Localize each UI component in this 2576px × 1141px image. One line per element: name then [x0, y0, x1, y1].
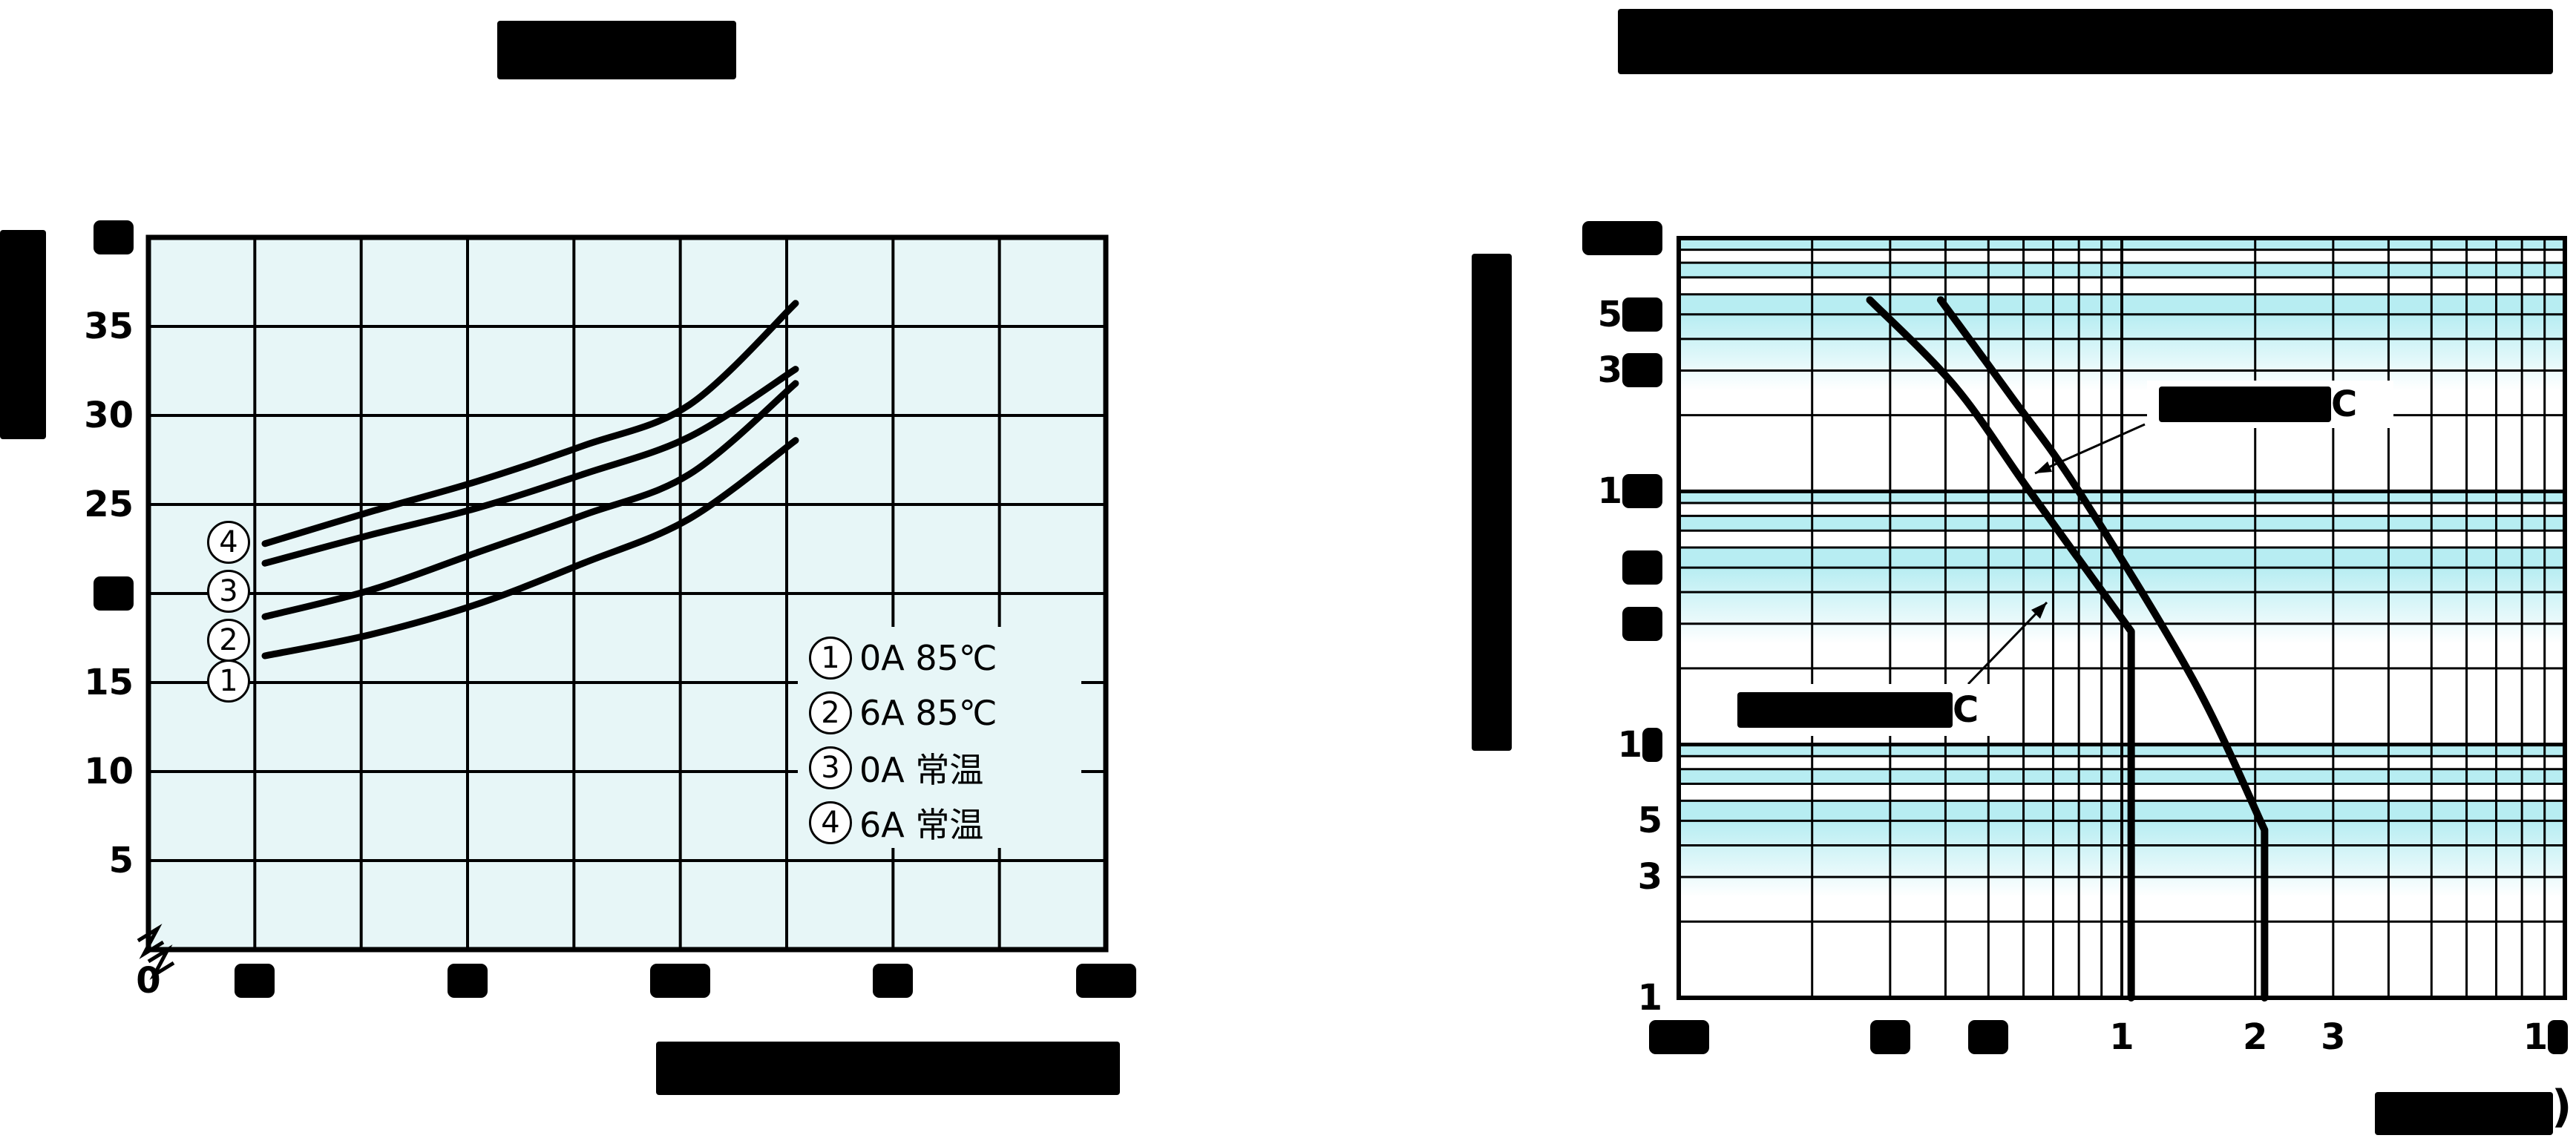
legend-item: 46A 常温 [809, 797, 983, 849]
legend-item: 26A 85℃ [809, 687, 997, 739]
right-x-tick [1838, 1015, 1942, 1059]
tick-redacted-blob [1622, 297, 1662, 332]
left-x-tick [848, 958, 937, 1003]
tick-redacted-blob [1622, 607, 1662, 641]
right-annotation-lower: C [1725, 684, 2016, 736]
right-x-axis-unit-suffix: ) [2552, 1085, 2572, 1129]
tick-redacted-blob [1622, 550, 1662, 585]
right-x-tick: 1 [2070, 1015, 2174, 1059]
right-y-tick: 1 [1514, 976, 1662, 1020]
legend-circled-number: 4 [809, 801, 852, 844]
curve-marker-circle: 4 [207, 521, 250, 564]
charts-svg [0, 0, 2576, 1141]
left-y-tick: 10 [45, 749, 134, 794]
left-x-tick [210, 958, 299, 1003]
tick-redacted-blob [235, 964, 275, 998]
legend-label: 0A 85℃ [859, 638, 997, 678]
right-y-tick: 5 [1514, 292, 1662, 337]
left-y-tick: 25 [45, 482, 134, 527]
tick-redacted-blob [1968, 1020, 2008, 1054]
left-y-tick: 35 [45, 304, 134, 349]
circled-number: 4 [207, 521, 250, 564]
annotation-lower-redacted [1737, 692, 1953, 728]
right-chart-title-redacted [1618, 9, 2553, 74]
curve-marker-circle: 3 [207, 570, 250, 613]
tick-prefix: 1 [1598, 470, 1622, 512]
right-y-tick: 3 [1514, 855, 1662, 899]
right-x-axis-unit-redacted [2375, 1092, 2553, 1135]
tick-prefix: 3 [1598, 349, 1622, 391]
left-x-tick [636, 958, 725, 1003]
legend-label: 0A 常温 [859, 743, 983, 792]
right-x-tick: 3 [2281, 1015, 2385, 1059]
left-x-tick: 0 [104, 958, 193, 1003]
tick-redacted-blob [1642, 728, 1662, 762]
left-y-tick: 30 [45, 393, 134, 438]
tick-prefix: 1 [2523, 1016, 2548, 1058]
right-y-tick: 1 [1514, 723, 1662, 767]
legend-label: 6A 85℃ [859, 693, 997, 733]
right-x-tick [1936, 1015, 2040, 1059]
circled-number: 2 [207, 619, 250, 662]
legend-item: 10A 85℃ [809, 632, 997, 684]
legend-item: 30A 常温 [809, 742, 983, 794]
annotation-upper-suffix: C [2331, 384, 2357, 425]
left-x-tick [423, 958, 512, 1003]
left-y-tick: 5 [45, 838, 134, 883]
tick-redacted-blob [650, 964, 710, 998]
right-y-tick: 5 [1514, 798, 1662, 843]
tick-redacted-blob [1622, 474, 1662, 508]
legend-label: 6A 常温 [859, 798, 983, 847]
tick-prefix: 5 [1598, 294, 1622, 335]
left-x-tick [1061, 958, 1150, 1003]
legend-circled-number: 3 [809, 746, 852, 789]
right-y-tick [1514, 216, 1662, 260]
tick-redacted-blob [873, 964, 913, 998]
datasheet-figure: ) 10A 85℃26A 85℃30A 常温46A 常温 4321 C C 35… [0, 0, 2576, 1141]
tick-redacted-blob [1622, 353, 1662, 387]
left-y-axis-title-redacted [0, 230, 46, 439]
left-y-tick: 15 [45, 660, 134, 705]
tick-redacted-blob [94, 220, 134, 254]
right-y-tick: 3 [1514, 348, 1662, 392]
legend-circled-number: 2 [809, 691, 852, 734]
tick-redacted-blob [1582, 221, 1662, 255]
right-y-tick [1514, 602, 1662, 646]
tick-redacted-blob [1076, 964, 1136, 998]
annotation-upper-redacted [2159, 387, 2331, 422]
tick-redacted-blob [2548, 1020, 2568, 1054]
circled-number: 3 [207, 570, 250, 613]
left-y-tick [45, 571, 134, 616]
annotation-lower-suffix: C [1953, 689, 1979, 731]
tick-prefix: 1 [1618, 724, 1642, 766]
tick-redacted-blob [94, 576, 134, 611]
legend-circled-number: 1 [809, 637, 852, 680]
left-y-tick [45, 215, 134, 260]
tick-redacted-blob [1649, 1020, 1709, 1054]
right-y-axis-title-redacted [1472, 254, 1512, 751]
right-y-tick [1514, 545, 1662, 590]
right-x-tick [1627, 1015, 1731, 1059]
left-chart-title-redacted [497, 21, 736, 79]
tick-redacted-blob [448, 964, 488, 998]
curve-marker-circle: 2 [207, 619, 250, 662]
left-x-axis-title-redacted [656, 1042, 1120, 1095]
circled-number: 1 [207, 660, 250, 703]
curve-marker-circle: 1 [207, 660, 250, 703]
right-y-tick: 1 [1514, 469, 1662, 513]
right-x-tick: 1 [2494, 1015, 2576, 1059]
right-annotation-upper: C [2147, 381, 2393, 428]
tick-redacted-blob [1870, 1020, 1910, 1054]
